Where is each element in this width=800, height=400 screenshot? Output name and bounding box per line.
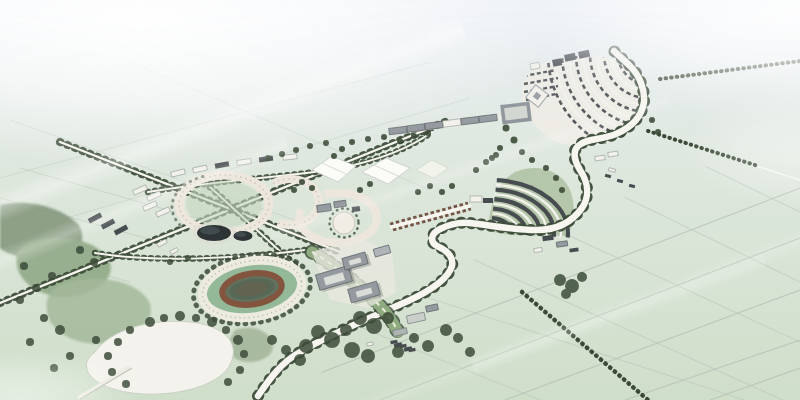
sky-haze-overlay (0, 0, 800, 400)
masterplan-canvas: Aerial perspective rendering of a landsc… (0, 0, 800, 400)
global-wash (0, 0, 800, 400)
masterplan-rendering: Aerial perspective rendering of a landsc… (0, 0, 800, 400)
